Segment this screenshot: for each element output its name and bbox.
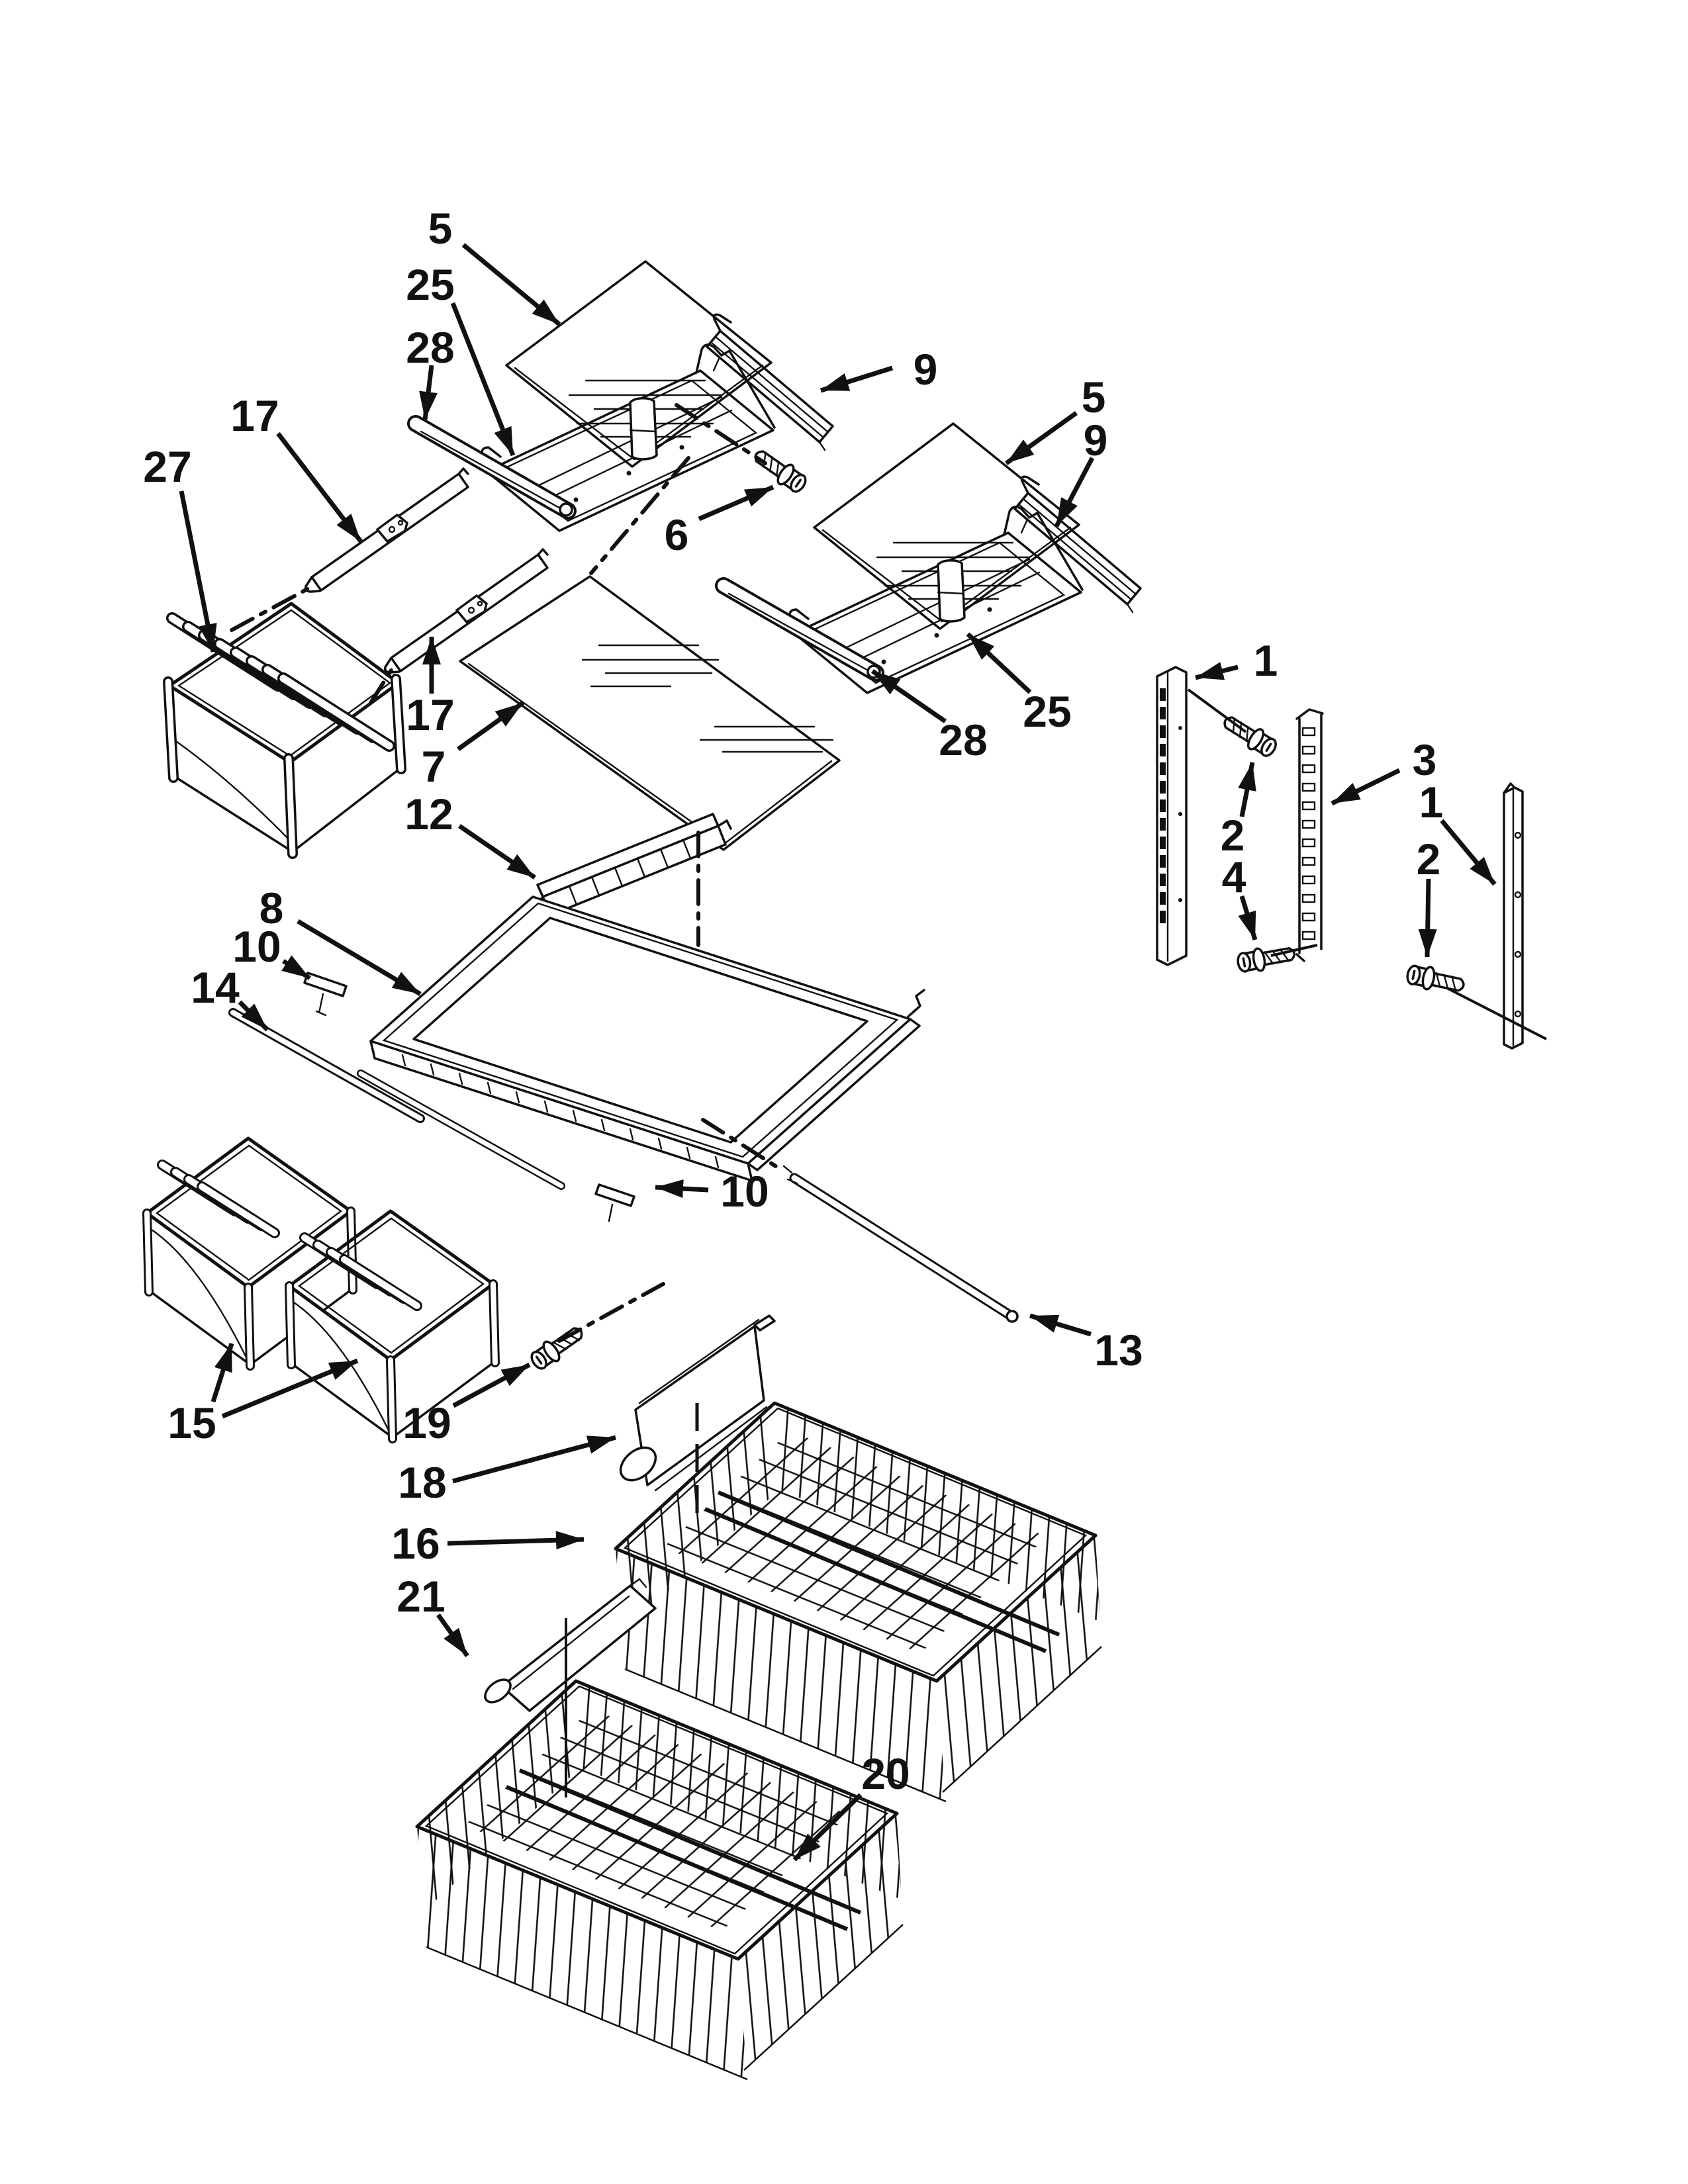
callout-label: 19: [402, 1398, 451, 1447]
callout-arrow: [1242, 896, 1255, 940]
callout-arrow: [968, 634, 1030, 692]
part-1-mounting-rail-right: [1504, 784, 1523, 1048]
leader-line: [1188, 690, 1246, 732]
callout-arrow: [278, 433, 361, 541]
callout-label: 27: [143, 442, 191, 491]
callout-label: 10: [232, 922, 281, 971]
callout-arrow: [655, 1187, 708, 1190]
part-1-mounting-rail-left: [1157, 667, 1186, 965]
callout-arrow: [453, 303, 513, 455]
part-2-screw-right: [1405, 963, 1466, 997]
callout-label: 4: [1222, 852, 1246, 901]
part-8-shelf-frame: [371, 897, 924, 1181]
callout-arrow: [1196, 667, 1238, 678]
callout-label: 21: [397, 1572, 445, 1621]
part-4-screw-lower: [1237, 942, 1297, 974]
callout-label: 16: [391, 1519, 440, 1568]
callout-label: 1: [1419, 778, 1444, 827]
callout-label: 17: [406, 690, 454, 739]
callout-label: 6: [665, 510, 689, 559]
callout-arrow: [1006, 413, 1076, 463]
callout-arrow: [1427, 879, 1429, 957]
part-17-slide-rail-upper: [306, 469, 468, 592]
part-27-meat-drawer: [168, 604, 401, 854]
part-3-ladder-rail: [1297, 709, 1323, 961]
callout-arrow: [699, 487, 773, 519]
callout-label: 1: [1254, 636, 1278, 685]
callout-label: 20: [861, 1749, 910, 1798]
callout-label: 17: [230, 391, 279, 440]
callout-label: 9: [914, 345, 938, 394]
callout-arrow: [821, 368, 892, 390]
callout-arrow: [459, 826, 535, 878]
part-10-clip-right: [596, 1185, 634, 1221]
callout-arrow: [1442, 821, 1495, 884]
part-12-damper-rail: [535, 814, 731, 915]
callout-arrow: [425, 365, 432, 420]
callout-label: 2: [1417, 835, 1441, 884]
callout-arrow: [1242, 762, 1252, 817]
shelf-assembly-upper-right: [724, 424, 1141, 693]
callout-label: 10: [720, 1167, 769, 1216]
callout-label: 13: [1094, 1326, 1143, 1375]
callout-arrow: [1056, 458, 1092, 526]
callout-label: 28: [406, 323, 454, 372]
exploded-parts-figure: 5252817279596252817712810141013151918162…: [0, 0, 1688, 2184]
callout-label: 18: [398, 1458, 446, 1507]
callout-arrow: [213, 1343, 232, 1402]
callout-arrow: [458, 703, 523, 749]
callout-label: 25: [406, 260, 454, 309]
parts-diagram-page: 5252817279596252817712810141013151918162…: [0, 0, 1688, 2184]
part-6-screw: [750, 445, 810, 496]
callout-arrow: [438, 1615, 467, 1656]
callout-arrow: [463, 245, 559, 324]
callout-arrow: [283, 961, 310, 978]
callout-arrow: [872, 671, 945, 721]
leader-line: [1446, 987, 1546, 1039]
callout-arrow: [1030, 1316, 1091, 1334]
callout-label: 14: [191, 963, 240, 1012]
callout-arrow: [1332, 770, 1399, 803]
callout-label: 5: [1082, 373, 1106, 422]
part-13-fill-tube: [784, 1166, 1017, 1322]
callout-label: 28: [939, 715, 987, 764]
part-10-clip-left: [305, 973, 346, 1015]
callout-arrow: [453, 1437, 616, 1481]
callout-label: 25: [1023, 687, 1071, 736]
callout-label: 5: [428, 204, 453, 253]
callout-arrow: [447, 1539, 584, 1543]
part-15-bin-right: [289, 1211, 495, 1439]
callout-label: 3: [1413, 735, 1437, 784]
callout-label: 12: [404, 790, 453, 839]
callout-label: 15: [167, 1398, 216, 1447]
callout-label: 9: [1084, 416, 1108, 465]
callout-label: 7: [422, 742, 446, 791]
